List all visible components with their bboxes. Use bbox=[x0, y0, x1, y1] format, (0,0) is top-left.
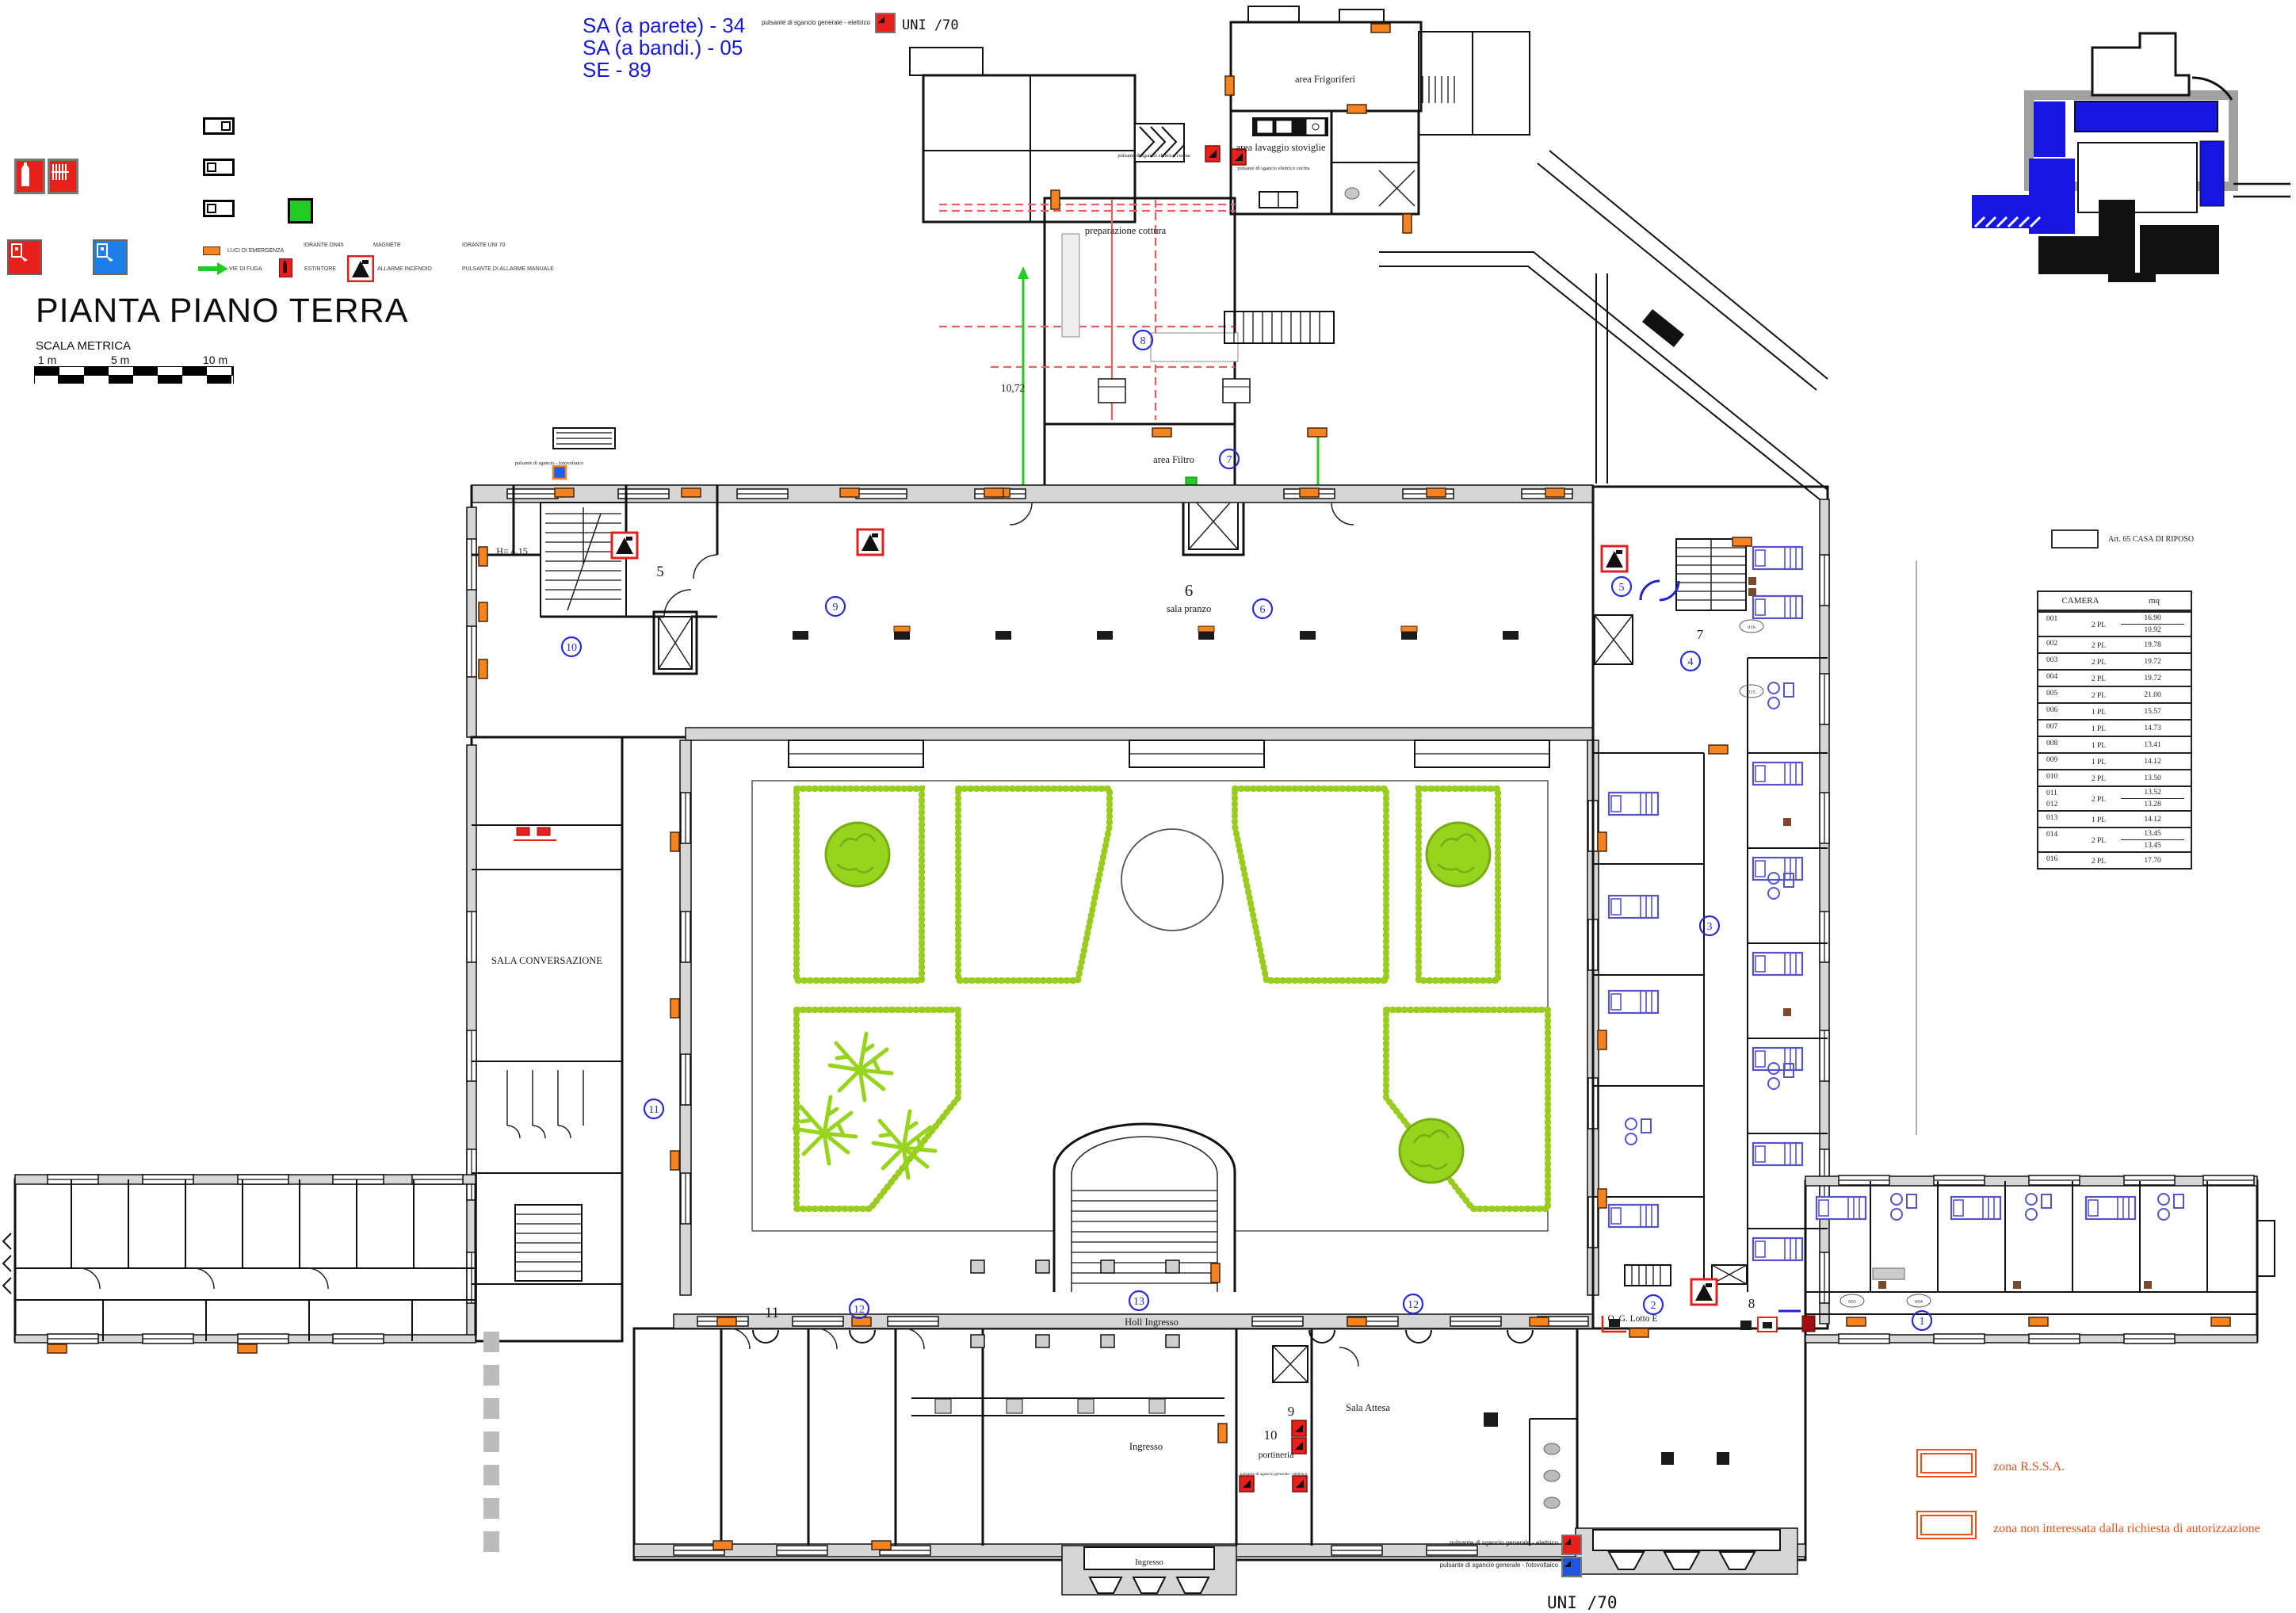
table-row: 0061 PL15.57 bbox=[2038, 702, 2191, 719]
table-row: 0162 PL17.70 bbox=[2038, 851, 2191, 868]
room-tag-016: 016 bbox=[1748, 625, 1756, 630]
note-pulsante-cucina: pulsante di sgancio elettrico cucina bbox=[1237, 166, 1309, 171]
release-button-electric-icon bbox=[7, 239, 42, 275]
marker-9: 9 bbox=[826, 597, 845, 616]
room-label-frigoriferi: area Frigoriferi bbox=[1295, 74, 1356, 85]
table-row: 0012 PL16.9010.92 bbox=[2038, 611, 2191, 636]
scale-label: SCALA METRICA bbox=[36, 339, 131, 353]
west-wing bbox=[467, 737, 622, 1341]
release-button-photovoltaic-icon bbox=[93, 239, 128, 275]
table-row: 0042 PL19.72 bbox=[2038, 669, 2191, 686]
uni70-bottom-label: UNI /70 bbox=[1547, 1593, 1618, 1612]
marker-11: 11 bbox=[644, 1099, 663, 1118]
scale-tick-1m: 1 m bbox=[38, 354, 56, 366]
diagonal-corridors bbox=[1379, 151, 1828, 499]
scale-bar bbox=[34, 366, 234, 384]
table-row: 0102 PL13.50 bbox=[2038, 769, 2191, 785]
room-label-sala-pranzo: sala pranzo bbox=[1167, 603, 1212, 614]
table-row: 0110122 PL13.5213.28 bbox=[2038, 785, 2191, 810]
emergency-light-swatch bbox=[203, 247, 220, 255]
tree-icon bbox=[826, 823, 889, 886]
note-pulsante-cucina-2: pulsante di sgancio elettrico cucina bbox=[1117, 153, 1190, 159]
dining-tables bbox=[793, 626, 1519, 640]
zone-rssa-swatch bbox=[1916, 1449, 1977, 1477]
ramp-hatch bbox=[1642, 309, 1684, 347]
grand-stair bbox=[1054, 1124, 1235, 1292]
room-label-filtro: area Filtro bbox=[1153, 454, 1194, 465]
marker-12: 12 bbox=[850, 1299, 869, 1318]
zone-number-7: 7 bbox=[1697, 627, 1704, 642]
courtyard bbox=[680, 740, 1599, 1295]
room-tag-005: 005 bbox=[1848, 1299, 1856, 1305]
note-height: H= 4.15 bbox=[496, 545, 527, 556]
note-portineria-release: pulsante di sgancio generale - elettrico bbox=[1240, 1472, 1308, 1477]
release-icon bbox=[1240, 1476, 1254, 1492]
page-title: PIANTA PIANO TERRA bbox=[36, 292, 408, 331]
garden-beds bbox=[794, 789, 1548, 1209]
holl-railing bbox=[911, 1398, 1224, 1416]
zone-non-interessata-swatch bbox=[1916, 1511, 1977, 1539]
legend-pulsante-manuale: PULSANTE DI ALLARME MANUALE bbox=[462, 266, 554, 272]
count-sa-parete: SA (a parete) - 34 bbox=[583, 14, 745, 36]
zone-number-9: 9 bbox=[1288, 1404, 1295, 1419]
room-label-sala-attesa: Sala Attesa bbox=[1346, 1402, 1390, 1413]
svg-text:9: 9 bbox=[833, 602, 839, 613]
device-counts: SA (a parete) - 34 SA (a bandi.) - 05 SE… bbox=[583, 14, 745, 81]
extinguisher-small-icon bbox=[279, 258, 292, 277]
table-caption: Art. 65 CASA DI RIPOSO bbox=[2051, 529, 2194, 548]
svg-text:7: 7 bbox=[1227, 454, 1232, 466]
svg-text:6: 6 bbox=[1260, 604, 1266, 616]
release-icon bbox=[1293, 1476, 1307, 1492]
zone-non-interessata-label: zona non interessata dalla richiesta di … bbox=[1993, 1522, 2260, 1536]
marker-6: 6 bbox=[1253, 599, 1272, 618]
dimension-arrow bbox=[1018, 266, 1029, 279]
room-label-ingresso-porch: Ingresso bbox=[1135, 1558, 1163, 1567]
tree-icon bbox=[1400, 1119, 1463, 1183]
svg-text:11: 11 bbox=[648, 1104, 659, 1116]
svg-text:3: 3 bbox=[1707, 921, 1713, 933]
marker-5: 5 bbox=[1612, 577, 1631, 596]
marker-4: 4 bbox=[1681, 652, 1700, 671]
table-row: 0081 PL13.41 bbox=[2038, 736, 2191, 752]
table-row: 0131 PL14.12 bbox=[2038, 810, 2191, 827]
photovoltaic-release-icon bbox=[553, 466, 566, 479]
release-icon bbox=[875, 13, 896, 33]
count-se: SE - 89 bbox=[583, 59, 745, 81]
furniture-symbol bbox=[203, 159, 235, 176]
top-release-note: pulsante di sgancio generale - elettrico bbox=[737, 19, 870, 26]
table-row: 0142 PL13.4513.45 bbox=[2038, 827, 2191, 851]
table-row: 0022 PL19.78 bbox=[2038, 636, 2191, 652]
camera-table: CAMERA mq 0012 PL16.9010.92 0022 PL19.78… bbox=[2037, 591, 2192, 870]
room-label-lavaggio: area lavaggio stoviglie bbox=[1236, 142, 1326, 153]
east-porch bbox=[1576, 1528, 1797, 1574]
svg-text:4: 4 bbox=[1688, 656, 1694, 668]
east-wing bbox=[1593, 487, 1829, 1328]
legend-luci: LUCI DI EMERGENZA bbox=[227, 248, 284, 254]
svg-text:12: 12 bbox=[1408, 1299, 1419, 1311]
release-icon bbox=[1561, 1557, 1582, 1577]
bottom-release-electric-note: pulsante di sgancio generale - elettrico bbox=[1400, 1539, 1558, 1546]
zone-number-11: 11 bbox=[765, 1305, 779, 1321]
uni70-top-label: UNI /70 bbox=[902, 17, 959, 33]
svg-text:5: 5 bbox=[1619, 582, 1625, 594]
room-label-sala-conversazione: SALA CONVERSAZIONE bbox=[491, 955, 602, 966]
table-row: 0032 PL19.72 bbox=[2038, 652, 2191, 669]
release-icon bbox=[1292, 1438, 1306, 1454]
magnet-device-icon bbox=[537, 828, 550, 835]
col-camera: CAMERA bbox=[2038, 596, 2122, 606]
green-exit-symbol bbox=[288, 198, 313, 224]
caption-swatch bbox=[2051, 529, 2099, 548]
note-photovoltaic: pulsante di sgancio - fotovoltaico bbox=[515, 461, 584, 466]
sala-attesa-room bbox=[1484, 1412, 1577, 1546]
roof-stair-hatch bbox=[553, 428, 615, 479]
dimension-10-72: 10,72 bbox=[1001, 382, 1025, 394]
svg-text:1: 1 bbox=[1920, 1316, 1925, 1328]
far-west-wing bbox=[3, 1175, 491, 1558]
floor-plan-canvas: area Frigoriferi area lavaggio stoviglie… bbox=[0, 0, 2296, 1613]
legend-allarme: ALLARME INCENDIO bbox=[377, 266, 432, 272]
main-hall-wing bbox=[467, 428, 1593, 767]
floor-plan-sheet: area Frigoriferi area lavaggio stoviglie… bbox=[0, 0, 2296, 1613]
svg-text:2: 2 bbox=[1651, 1300, 1656, 1312]
zone-number-5: 5 bbox=[656, 564, 664, 580]
marker-12b: 12 bbox=[1404, 1294, 1423, 1313]
legend-idrante-dn45: IDRANTE DN45 bbox=[304, 243, 344, 248]
legend-idrante-uni70: IDRANTE UNI 70 bbox=[462, 243, 505, 248]
entrance-porch bbox=[1062, 1546, 1236, 1595]
key-plan bbox=[1972, 33, 2290, 282]
marker-2: 2 bbox=[1644, 1295, 1663, 1314]
marker-10: 10 bbox=[562, 637, 581, 656]
marker-8: 8 bbox=[1133, 331, 1152, 350]
scale-tick-5m: 5 m bbox=[111, 354, 129, 366]
room-label-portineria: portineria bbox=[1259, 1451, 1294, 1460]
legend-estintore: ESTINTORE bbox=[304, 266, 336, 272]
svg-text:13: 13 bbox=[1133, 1296, 1144, 1308]
room-tag-004: 004 bbox=[1915, 1299, 1924, 1305]
fire-alarm-icon bbox=[1602, 546, 1627, 571]
release-icon bbox=[1292, 1420, 1306, 1436]
furniture-symbol bbox=[203, 117, 235, 135]
plan-labels: area Frigoriferi area lavaggio stoviglie… bbox=[491, 74, 1924, 1567]
fire-alarm-icon bbox=[1691, 1279, 1717, 1305]
marker-13: 13 bbox=[1129, 1291, 1148, 1310]
col-mq: mq bbox=[2122, 596, 2186, 606]
zone-number-10: 10 bbox=[1264, 1428, 1278, 1443]
svg-text:12: 12 bbox=[854, 1304, 865, 1316]
release-icon bbox=[1561, 1535, 1582, 1555]
fire-hose-icon bbox=[48, 159, 78, 194]
room-label-cottura: preparazione cottura bbox=[1085, 225, 1167, 236]
room-tag-015: 015 bbox=[1748, 690, 1755, 695]
extinguisher-icon bbox=[14, 159, 45, 194]
zone-rssa-label: zona R.S.S.A. bbox=[1993, 1460, 2065, 1474]
zone-number-6: 6 bbox=[1185, 581, 1194, 600]
magnet-device-icon bbox=[517, 828, 529, 835]
table-row: 0052 PL21.00 bbox=[2038, 686, 2191, 702]
legend-magnete: MAGNETE bbox=[373, 243, 401, 248]
furniture-symbol bbox=[203, 200, 235, 217]
zone-number-8: 8 bbox=[1748, 1296, 1755, 1311]
room-label-ingresso: Ingresso bbox=[1129, 1441, 1163, 1452]
kitchen-wing bbox=[910, 6, 1530, 555]
fire-alarm-icon bbox=[612, 533, 637, 558]
svg-text:8: 8 bbox=[1140, 335, 1146, 347]
svg-text:10: 10 bbox=[566, 642, 577, 654]
legend-vie: VIE DI FUGA bbox=[229, 266, 262, 272]
camera-table-header: CAMERA mq bbox=[2038, 592, 2191, 611]
caption-text: Art. 65 CASA DI RIPOSO bbox=[2108, 535, 2194, 544]
table-row: 0091 PL14.12 bbox=[2038, 752, 2191, 769]
tree-icon bbox=[1427, 823, 1490, 886]
table-row: 0071 PL14.73 bbox=[2038, 719, 2191, 736]
room-label-holl: Holl Ingresso bbox=[1125, 1317, 1179, 1328]
count-sa-bandi: SA (a bandi.) - 05 bbox=[583, 36, 745, 59]
bottom-release-photovoltaic-note: pulsante di sgancio generale - fotovolta… bbox=[1384, 1561, 1558, 1569]
kitchen-release-icon bbox=[1205, 146, 1220, 162]
marker-3: 3 bbox=[1700, 916, 1719, 935]
scale-tick-10m: 10 m bbox=[203, 354, 227, 366]
portineria-room bbox=[1240, 1346, 1308, 1492]
fire-alarm-icon bbox=[858, 529, 883, 555]
room-label-qg-lotto: Q. G. Lotto E bbox=[1608, 1314, 1658, 1324]
